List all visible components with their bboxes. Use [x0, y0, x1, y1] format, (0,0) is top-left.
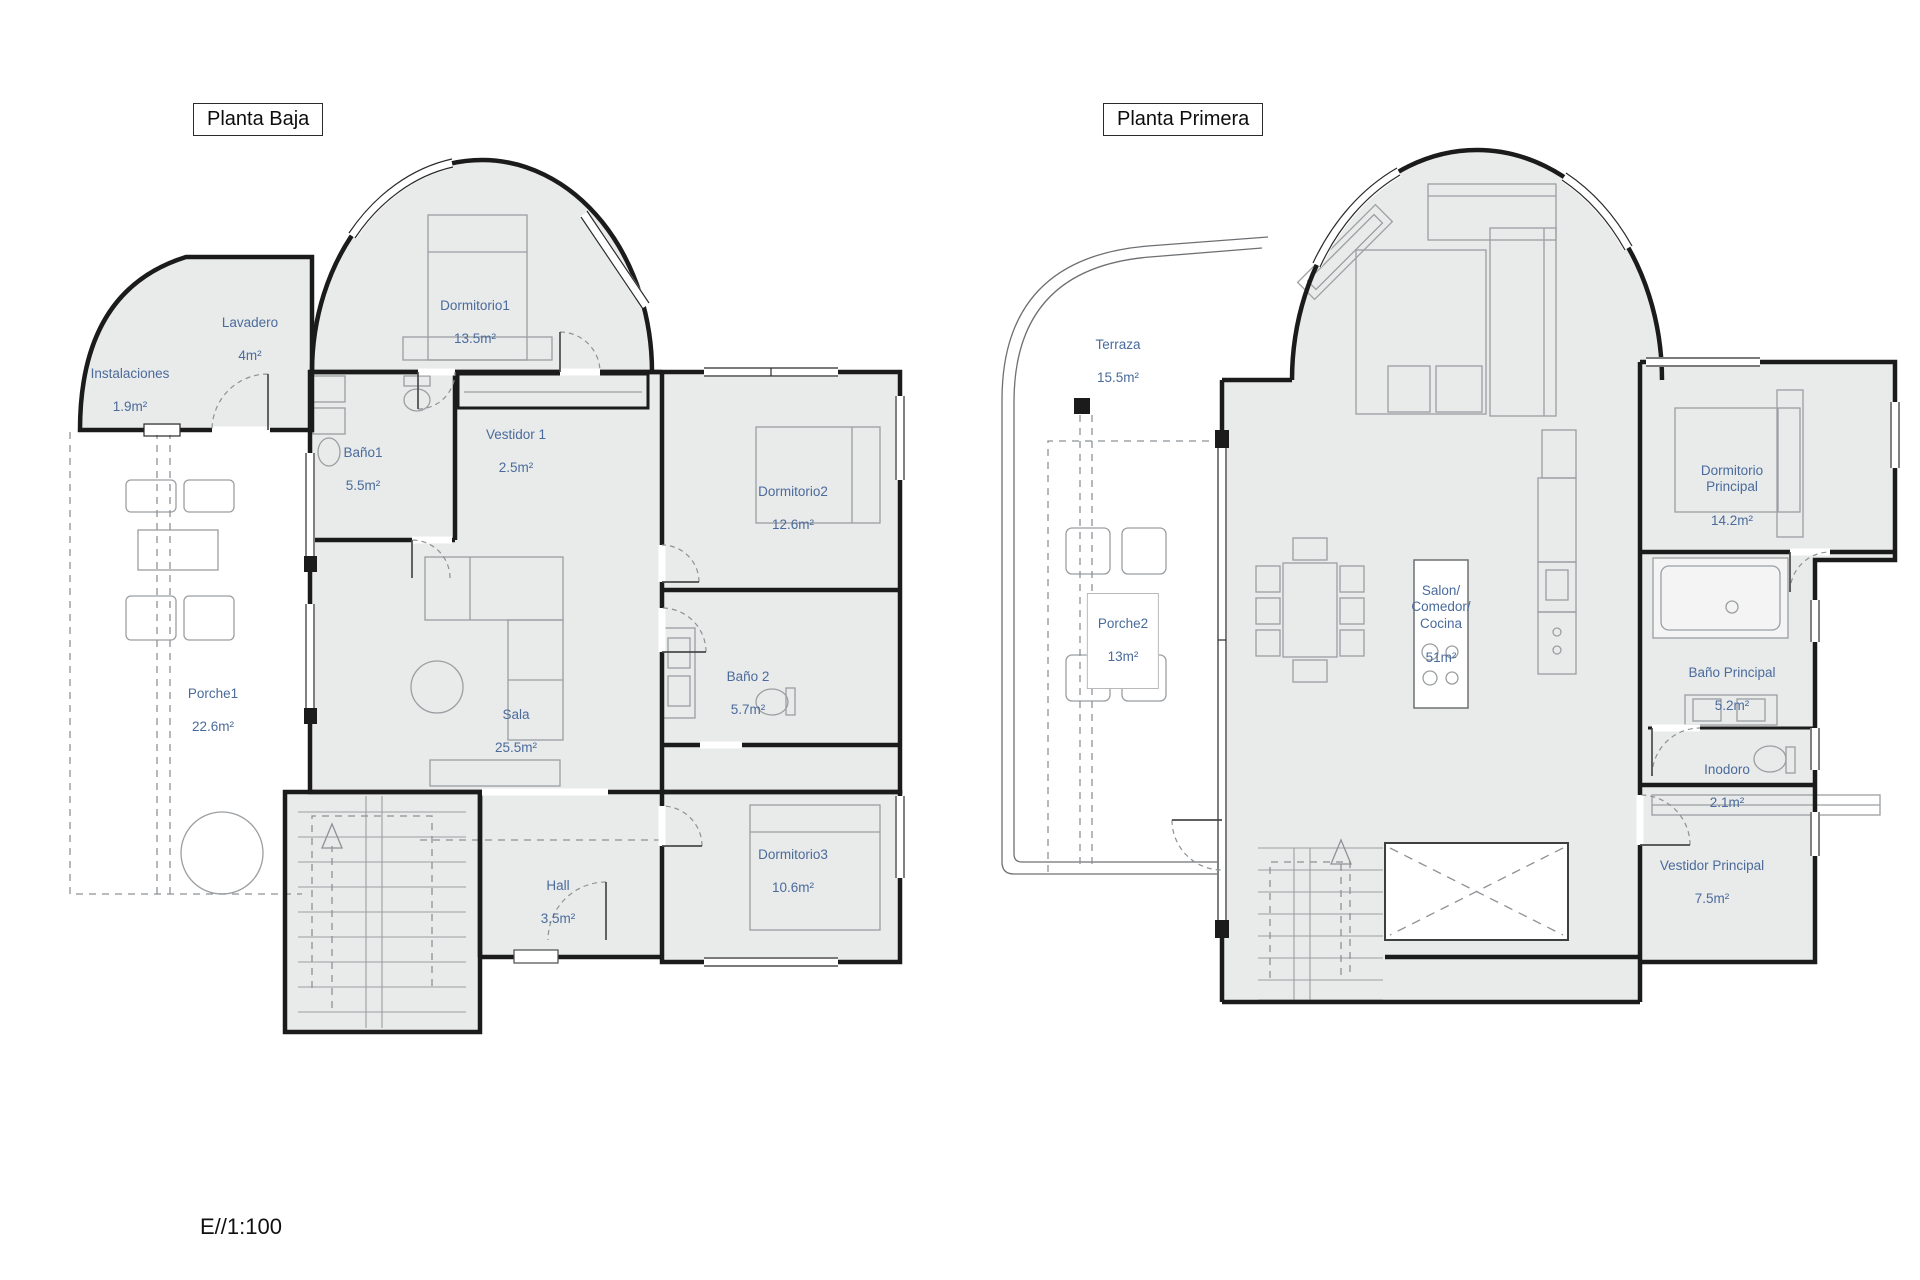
planta-baja-title-text: Planta Baja — [207, 108, 309, 130]
room-label-salon-comedor-cocina: Salon/ Comedor/ Cocina 51m² — [1411, 566, 1470, 683]
entry-threshold — [514, 950, 558, 963]
room-label-bano-principal: Baño Principal 5.2m² — [1688, 648, 1775, 732]
room-label-hall: Hall 3.5m² — [541, 861, 576, 945]
planta-primera-title: Planta Primera — [1103, 103, 1263, 136]
room-label-bano1: Baño1 5.5m² — [343, 428, 382, 512]
room-label-dormitorio3: Dormitorio3 10.6m² — [758, 830, 828, 914]
room-label-inodoro: Inodoro 2.1m² — [1704, 745, 1750, 829]
room-label-vestidor1: Vestidor 1 2.5m² — [486, 410, 546, 494]
planta-baja-title: Planta Baja — [193, 103, 323, 136]
room-label-terraza: Terraza 15.5m² — [1095, 320, 1140, 404]
room-label-sala: Sala 25.5m² — [495, 690, 537, 774]
room-label-dormitorio2: Dormitorio2 12.6m² — [758, 467, 828, 551]
room-label-bano2: Baño 2 5.7m² — [727, 652, 770, 736]
room-label-lavadero: Lavadero 4m² — [222, 298, 278, 382]
room-label-vestidor-principal: Vestidor Principal 7.5m² — [1660, 841, 1764, 925]
room-label-porche1: Porche1 22.6m² — [188, 669, 238, 753]
room-label-instalaciones: Instalaciones 1.9m² — [91, 349, 170, 433]
planta-primera-title-text: Planta Primera — [1117, 108, 1249, 130]
room-label-porche2: Porche2 13m² — [1087, 593, 1159, 689]
floorplan-drawing — [0, 0, 1920, 1280]
scale-label: E//1:100 — [200, 1214, 282, 1240]
floorplan-canvas: Planta Baja Planta Primera Instalaciones… — [0, 0, 1920, 1280]
room-label-dormitorio-principal: Dormitorio Principal 14.2m² — [1701, 446, 1763, 546]
room-label-dormitorio1: Dormitorio1 13.5m² — [440, 281, 510, 365]
